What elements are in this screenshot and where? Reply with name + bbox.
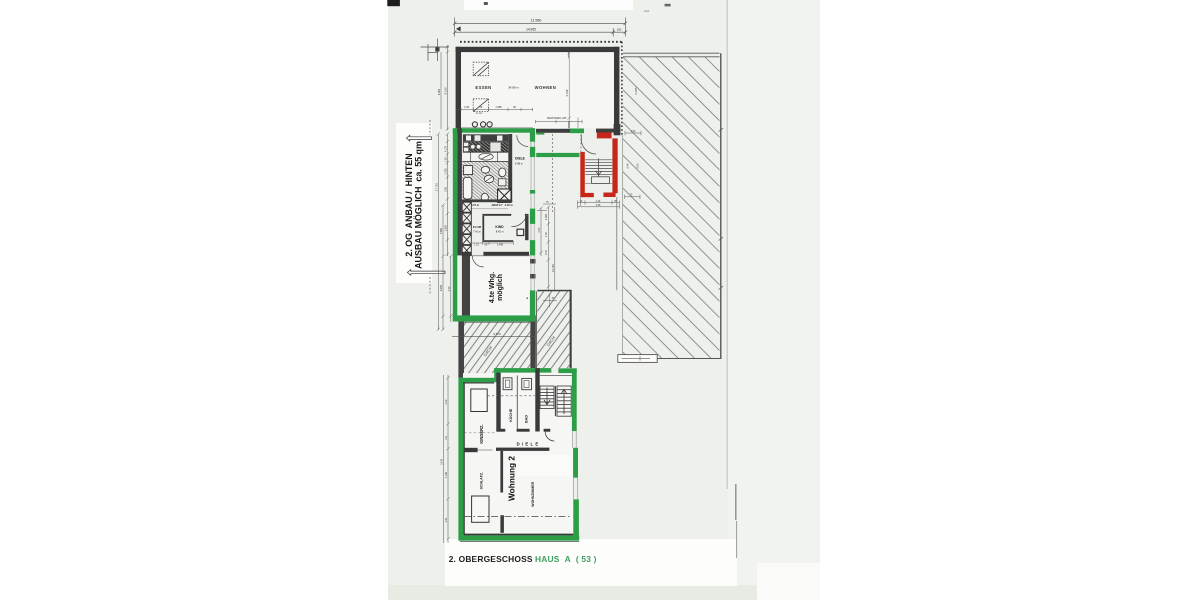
svg-text:7.41 m: 7.41 m (473, 230, 481, 233)
svg-text:BAD: BAD (525, 415, 529, 423)
svg-text:Wohnung 2: Wohnung 2 (507, 456, 517, 501)
svg-text:8.985: 8.985 (438, 88, 441, 95)
svg-text:1.85: 1.85 (464, 106, 469, 109)
svg-text:5.00: 5.00 (635, 163, 639, 169)
svg-text:4.185: 4.185 (445, 471, 448, 478)
svg-text:6.98 m: 6.98 m (515, 161, 523, 165)
svg-text:3.625: 3.625 (444, 224, 447, 231)
svg-text:2. OBERGESCHOSS: 2. OBERGESCHOSS (449, 554, 533, 564)
svg-text:ABST.2.7: ABST.2.7 (492, 203, 504, 207)
svg-text:HAUS A ( 53 ): HAUS A ( 53 ) (535, 554, 597, 564)
svg-text:1.30: 1.30 (444, 157, 447, 162)
svg-text:1.50: 1.50 (545, 231, 548, 236)
svg-text:5.198: 5.198 (565, 89, 569, 96)
svg-text:1.31: 1.31 (474, 244, 479, 247)
svg-text:150: 150 (617, 27, 622, 31)
svg-text:3.29: 3.29 (445, 399, 448, 404)
svg-text:2.98: 2.98 (596, 205, 601, 207)
svg-text:13.782: 13.782 (552, 264, 555, 272)
svg-text:3.34: 3.34 (445, 517, 448, 522)
svg-text:2.405: 2.405 (444, 168, 447, 175)
svg-text:34.89 m: 34.89 m (508, 86, 519, 90)
svg-text:4.16 m: 4.16 m (505, 203, 514, 207)
svg-text:2.52: 2.52 (545, 249, 548, 254)
svg-text:9.310: 9.310 (443, 87, 447, 94)
svg-text:1.498: 1.498 (497, 244, 504, 247)
svg-text:KIND: KIND (495, 225, 504, 229)
svg-text:8.42 m: 8.42 m (496, 230, 504, 234)
svg-text:6.925: 6.925 (440, 284, 443, 291)
svg-text:5.67 m: 5.67 m (471, 203, 480, 207)
svg-text:KÜCHE: KÜCHE (508, 408, 513, 422)
svg-text:2.95: 2.95 (444, 187, 447, 192)
svg-text:6.570: 6.570 (493, 332, 501, 336)
svg-text:4.te Whg.: 4.te Whg. (489, 272, 496, 303)
svg-text:möglich: möglich (497, 274, 504, 301)
svg-text:4.10: 4.10 (644, 9, 650, 13)
svg-text:SCHLAFZ.: SCHLAFZ. (479, 472, 483, 489)
svg-text:17.710: 17.710 (434, 182, 438, 190)
svg-text:5.40: 5.40 (626, 163, 630, 169)
svg-text:DIELE: DIELE (515, 157, 526, 161)
svg-text:DIELE: DIELE (517, 441, 541, 446)
svg-text:1.985: 1.985 (495, 106, 502, 109)
svg-text:5.895: 5.895 (440, 227, 443, 234)
svg-text:FLUR: FLUR (473, 225, 482, 229)
svg-text:14.965: 14.965 (526, 28, 536, 32)
svg-text:4.30: 4.30 (448, 286, 451, 291)
svg-text:FENSTERFL.625: FENSTERFL.625 (547, 117, 567, 120)
svg-text:11.580: 11.580 (531, 18, 542, 22)
svg-text:WOHNEN: WOHNEN (535, 85, 556, 90)
svg-text:2.50: 2.50 (538, 227, 541, 232)
svg-text:AUSBAU MÖGLICH ca. 55 qm: AUSBAU MÖGLICH ca. 55 qm (413, 141, 423, 269)
svg-text:1.385: 1.385 (545, 213, 548, 220)
svg-text:2.18: 2.18 (596, 201, 601, 203)
svg-text:4.175: 4.175 (444, 145, 447, 152)
svg-text:10.40: 10.40 (441, 458, 444, 465)
svg-text:6.965: 6.965 (634, 87, 638, 95)
svg-text:KINDERZ.: KINDERZ. (479, 424, 484, 443)
svg-text:41.112: 41.112 (476, 113, 484, 115)
svg-text:1.01: 1.01 (445, 435, 448, 440)
svg-text:1.50: 1.50 (631, 130, 636, 133)
svg-text:WOHNZIMMER: WOHNZIMMER (531, 481, 535, 506)
svg-text:ESSEN: ESSEN (475, 85, 491, 90)
